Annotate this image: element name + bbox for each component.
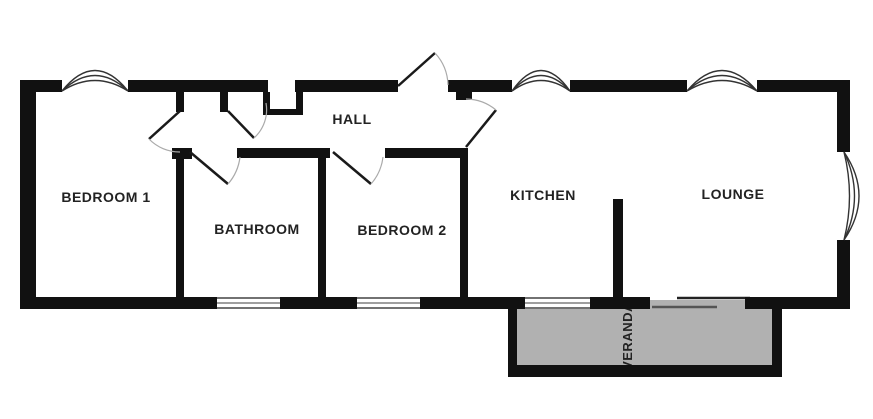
wall-top-seg3 [295,80,398,92]
room-label-lounge: LOUNGE [702,186,765,202]
bedroom2-window [357,297,420,309]
room-label-veranda: VERANDA [620,302,635,370]
wall-top-seg5 [570,80,687,92]
room-label-bedroom2: BEDROOM 2 [357,222,446,238]
wall-bottom-seg3 [420,297,525,309]
wall-hall-corner [172,148,192,159]
room-label-bedroom1: BEDROOM 1 [61,189,150,205]
wall-top-seg4 [448,80,512,92]
wall-bottom-seg1 [20,297,217,309]
front-door [398,53,448,86]
bathroom-window [217,297,280,309]
wall-top-seg2 [128,80,268,92]
wall-top-seg6 [757,80,850,92]
closet-wall-bottom [263,109,303,115]
kitchen-door [466,99,496,147]
wall-bedroom2-right [460,148,468,309]
wall-hall-seg1 [237,148,330,158]
wall-stub-bedroom1-door [176,92,184,112]
wall-bathroom-right [318,148,326,309]
wall-bottom-seg5 [745,297,850,309]
veranda-wall-right [772,300,782,377]
bottom-windows [217,297,590,309]
room-labels: BEDROOM 1 BATHROOM BEDROOM 2 HALL KITCHE… [61,111,764,238]
lounge-bay-window [843,152,859,240]
wall-stub-hall [220,92,228,112]
wall-kitchen-lounge-divider [613,199,623,309]
wall-left [20,80,36,309]
bedroom1-window [62,71,128,93]
floor-plan-canvas: VERANDA [0,0,873,419]
kitchen-veranda-window [525,297,590,309]
wall-right-seg1 [837,80,850,152]
hall-cupboard-door [228,103,267,138]
floor-plan-drawing: VERANDA [0,0,873,419]
bathroom-door [190,152,240,184]
room-label-bathroom: BATHROOM [214,221,299,237]
room-label-hall: HALL [332,111,371,127]
bedroom2-door [333,152,383,184]
wall-bathroom-left [176,148,184,309]
wall-hall-seg2 [385,148,468,158]
veranda-wall-bottom [508,365,782,377]
room-label-kitchen: KITCHEN [510,187,576,203]
kitchen-window [512,71,570,93]
bedroom1-door [149,111,180,152]
lounge-window [687,71,757,93]
